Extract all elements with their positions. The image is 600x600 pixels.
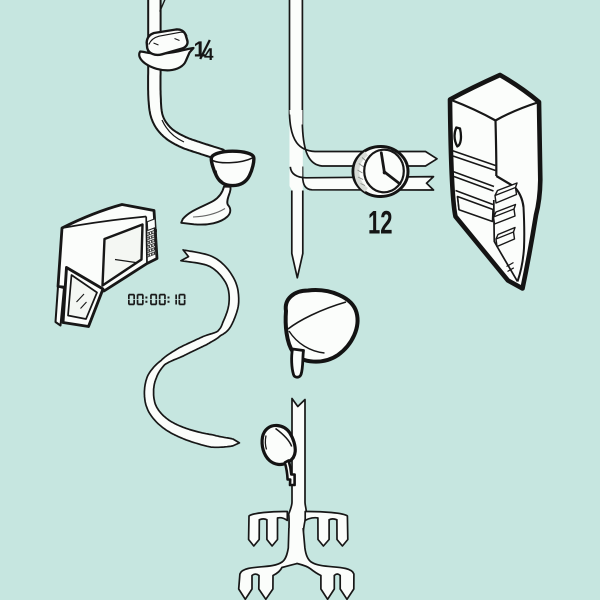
svg-text:4: 4 [204,45,214,64]
svg-text:12: 12 [368,205,393,241]
